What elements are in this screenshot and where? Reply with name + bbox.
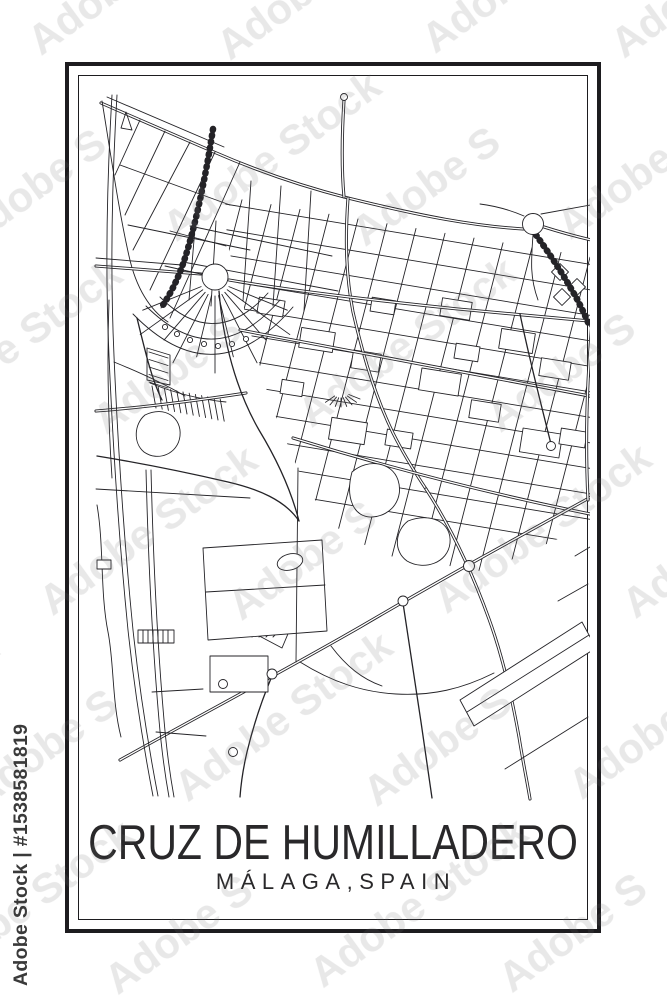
street-network xyxy=(96,94,590,800)
title-block: CRUZ DE HUMILLADERO MÁLAGA,SPAIN xyxy=(65,818,601,893)
map-poster: CRUZ DE HUMILLADERO MÁLAGA,SPAIN Adobe S… xyxy=(0,0,667,1000)
stock-id-watermark: Adobe Stock | #1538581819 xyxy=(10,724,33,986)
poster-title: CRUZ DE HUMILLADERO xyxy=(65,818,601,867)
main-roads xyxy=(96,95,590,799)
street-map-graphic xyxy=(76,73,590,922)
poster-subtitle: MÁLAGA,SPAIN xyxy=(65,871,601,893)
